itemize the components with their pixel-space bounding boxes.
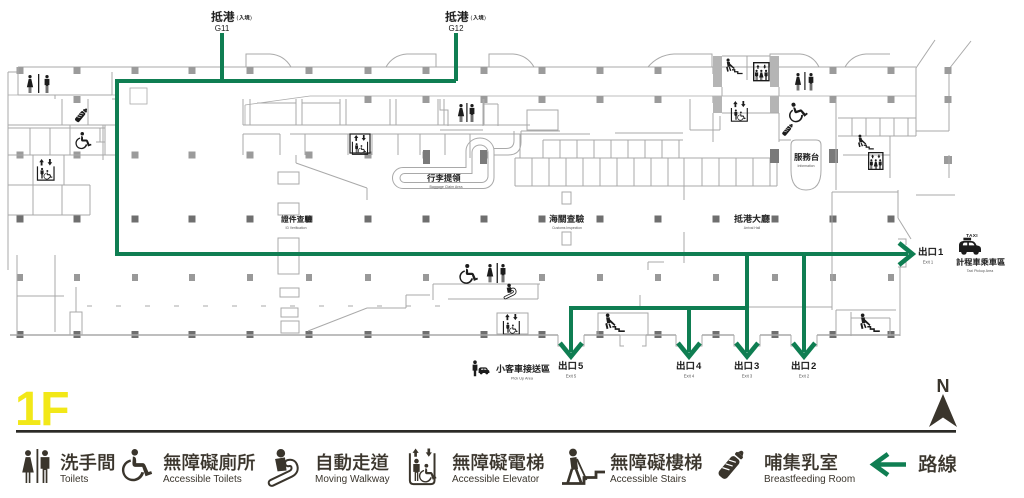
svg-text:Pick Up Area: Pick Up Area (511, 377, 534, 381)
svg-text:Arrival Hall: Arrival Hall (744, 226, 761, 230)
svg-text:G11: G11 (215, 24, 230, 33)
svg-text:): ) (484, 16, 486, 22)
svg-text:G12: G12 (448, 24, 464, 33)
svg-text:Exit 4: Exit 4 (684, 374, 695, 379)
svg-text:5: 5 (578, 361, 584, 372)
svg-text:2: 2 (811, 361, 816, 372)
svg-text:(: ( (471, 16, 473, 22)
svg-text:): ) (250, 16, 252, 22)
svg-text:Exit 1: Exit 1 (923, 260, 934, 265)
svg-text:Breastfeeding Room: Breastfeeding Room (764, 474, 855, 485)
svg-text:Accessible Elevator: Accessible Elevator (452, 474, 540, 485)
svg-text:Taxi Pickup Area: Taxi Pickup Area (967, 269, 994, 273)
svg-text:(: ( (237, 16, 239, 22)
svg-text:ID Verification: ID Verification (286, 226, 307, 230)
svg-text:N: N (937, 376, 950, 396)
svg-text:Baggage Claim Area: Baggage Claim Area (430, 185, 463, 189)
svg-text:Exit 2: Exit 2 (799, 374, 810, 379)
svg-text:1: 1 (938, 247, 944, 258)
svg-text:3: 3 (754, 361, 759, 372)
svg-text:Accessible Stairs: Accessible Stairs (610, 474, 686, 485)
svg-text:4: 4 (696, 361, 702, 372)
svg-text:Accessible Toilets: Accessible Toilets (163, 474, 242, 485)
svg-text:Moving Walkway: Moving Walkway (315, 474, 390, 485)
svg-text:1F: 1F (15, 383, 68, 436)
svg-text:Toilets: Toilets (60, 474, 88, 485)
svg-text:Exit 3: Exit 3 (742, 374, 753, 379)
svg-text:Exit 5: Exit 5 (566, 374, 577, 379)
svg-text:Information: Information (798, 164, 815, 168)
svg-text:Customs Inspection: Customs Inspection (552, 226, 582, 230)
